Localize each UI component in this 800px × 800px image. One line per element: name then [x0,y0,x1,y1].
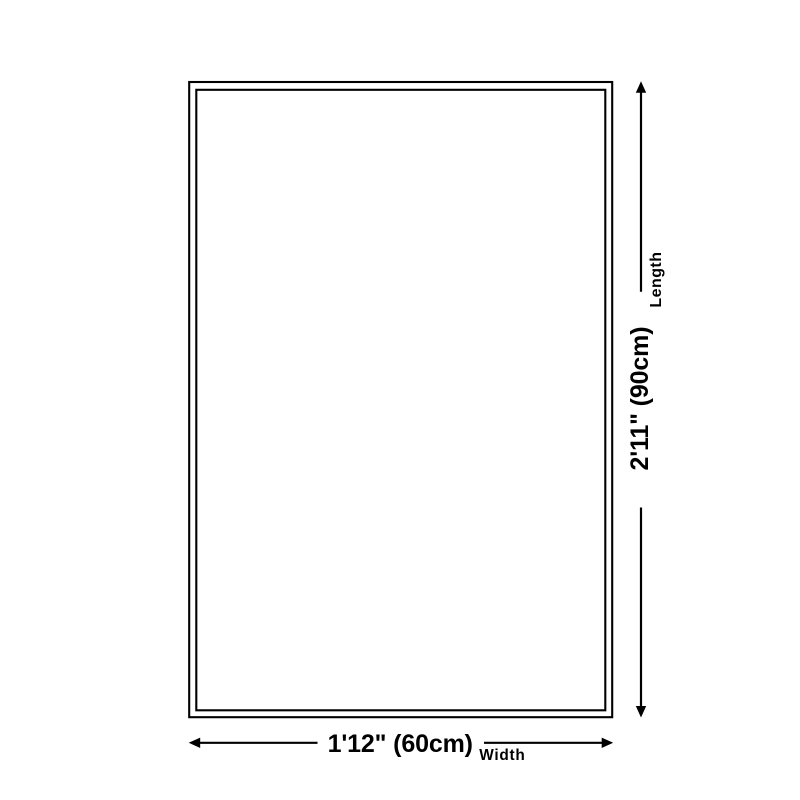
svg-text:Width: Width [479,747,525,764]
svg-text:1'12" (60cm): 1'12" (60cm) [328,730,473,758]
svg-text:Length: Length [648,252,665,308]
svg-text:2'11" (90cm): 2'11" (90cm) [626,327,654,471]
